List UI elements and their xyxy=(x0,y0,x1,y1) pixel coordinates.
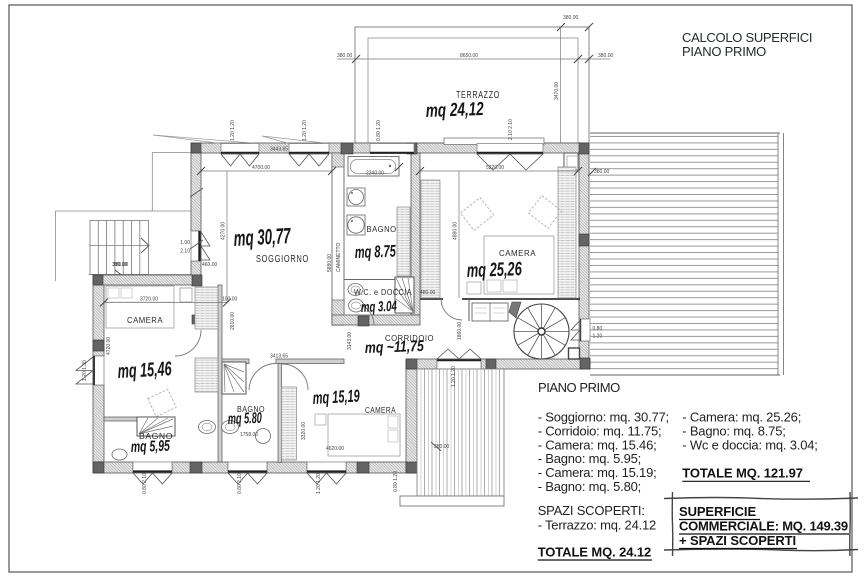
svg-text:2.10 2.10: 2.10 2.10 xyxy=(508,119,514,140)
svg-text:PIANO PRIMO: PIANO PRIMO xyxy=(682,44,766,59)
svg-text:2610.00: 2610.00 xyxy=(230,312,236,330)
svg-text:380.00: 380.00 xyxy=(337,53,353,59)
svg-text:1.20 1.20: 1.20 1.20 xyxy=(316,473,322,494)
svg-text:- Corridoio: mq. 11.75;: - Corridoio: mq. 11.75; xyxy=(538,423,662,438)
svg-text:1.20 1.20: 1.20 1.20 xyxy=(451,366,457,387)
svg-text:+ SPAZI SCOPERTI: + SPAZI SCOPERTI xyxy=(679,533,796,548)
svg-text:380.00: 380.00 xyxy=(434,444,450,450)
svg-text:0.80 2.10: 0.80 2.10 xyxy=(142,473,148,494)
svg-text:- Camera: mq. 25.26;: - Camera: mq. 25.26; xyxy=(682,410,801,425)
svg-text:mq ~11,75: mq ~11,75 xyxy=(365,338,425,357)
svg-text:1.20 1.30: 1.20 1.30 xyxy=(82,360,88,381)
svg-text:TOTALE MQ. 121.97: TOTALE MQ. 121.97 xyxy=(682,465,803,480)
svg-text:PIANO PRIMO: PIANO PRIMO xyxy=(538,380,620,395)
svg-text:mq 5.80: mq 5.80 xyxy=(228,410,263,428)
svg-text:- Bagno: mq. 5.80;: - Bagno: mq. 5.80; xyxy=(538,479,641,494)
svg-text:- Bagno: mq. 5.95;: - Bagno: mq. 5.95; xyxy=(538,451,641,466)
svg-text:0.80 2.10: 0.80 2.10 xyxy=(237,473,243,494)
svg-text:5220.00: 5220.00 xyxy=(486,165,504,171)
svg-text:3320.00: 3320.00 xyxy=(301,422,307,440)
svg-text:4700.00: 4700.00 xyxy=(252,165,270,171)
svg-text:CAMERA: CAMERA xyxy=(365,406,396,415)
svg-text:COMMERCIALE: MQ. 149.39: COMMERCIALE: MQ. 149.39 xyxy=(679,519,848,534)
svg-text:380.00: 380.00 xyxy=(113,262,129,268)
svg-text:CAMINETTO: CAMINETTO xyxy=(336,243,342,272)
svg-text:3413.65: 3413.65 xyxy=(270,354,288,360)
svg-text:SUPERFICIE: SUPERFICIE xyxy=(679,504,756,519)
svg-text:SPAZI SCOPERTI:: SPAZI SCOPERTI: xyxy=(538,503,645,518)
svg-text:2.10: 2.10 xyxy=(180,249,190,255)
svg-text:mq 15,46: mq 15,46 xyxy=(117,358,173,383)
svg-text:5880.00: 5880.00 xyxy=(327,254,333,272)
svg-text:CAMERA: CAMERA xyxy=(127,316,163,325)
svg-text:BAGNO: BAGNO xyxy=(367,225,397,234)
svg-text:4720.00: 4720.00 xyxy=(106,337,112,355)
svg-text:mq 15,19: mq 15,19 xyxy=(312,386,360,408)
svg-text:4880.00: 4880.00 xyxy=(453,222,459,240)
svg-text:0.80 1.20: 0.80 1.20 xyxy=(376,120,382,141)
svg-text:380.00: 380.00 xyxy=(598,53,614,59)
svg-text:W.C. e DOCCIA: W.C. e DOCCIA xyxy=(354,288,412,297)
svg-text:TOTALE MQ. 24.12: TOTALE MQ. 24.12 xyxy=(538,544,652,559)
svg-text:1.20 1.20: 1.20 1.20 xyxy=(230,120,236,141)
svg-text:- Soggiorno: mq. 30.77;: - Soggiorno: mq. 30.77; xyxy=(538,410,669,425)
svg-text:mq 5,95: mq 5,95 xyxy=(131,438,171,456)
svg-text:1758.00: 1758.00 xyxy=(240,432,258,438)
svg-text:0.80: 0.80 xyxy=(593,326,603,332)
svg-text:3470.00: 3470.00 xyxy=(554,82,560,100)
svg-text:- Camera: mq. 15.19;: - Camera: mq. 15.19; xyxy=(538,465,657,480)
svg-text:0.80 1.20: 0.80 1.20 xyxy=(393,471,399,492)
svg-text:4270.00: 4270.00 xyxy=(221,222,227,240)
svg-text:mq 30,77: mq 30,77 xyxy=(233,223,292,251)
svg-text:2340.00: 2340.00 xyxy=(366,171,384,177)
svg-text:460.00: 460.00 xyxy=(202,262,218,268)
svg-text:100.00: 100.00 xyxy=(222,297,238,303)
svg-text:mq 3.04: mq 3.04 xyxy=(361,299,398,316)
svg-text:1.00: 1.00 xyxy=(180,240,190,246)
svg-text:480.00: 480.00 xyxy=(420,290,436,296)
svg-text:380.00: 380.00 xyxy=(594,169,610,175)
svg-text:mq 24,12: mq 24,12 xyxy=(425,99,484,122)
svg-text:1860.00: 1860.00 xyxy=(457,322,463,340)
svg-text:1.20 1.20: 1.20 1.20 xyxy=(302,120,308,141)
svg-text:CAMERA: CAMERA xyxy=(499,249,536,258)
svg-text:- Wc e doccia: mq. 3.04;: - Wc e doccia: mq. 3.04; xyxy=(682,437,817,452)
svg-text:mq 25,26: mq 25,26 xyxy=(466,258,522,282)
svg-text:- Bagno: mq. 8.75;: - Bagno: mq. 8.75; xyxy=(682,423,785,438)
svg-text:1.20: 1.20 xyxy=(593,334,603,340)
svg-text:SOGGIORNO: SOGGIORNO xyxy=(256,254,309,265)
svg-text:3720.00: 3720.00 xyxy=(140,297,158,303)
svg-text:380.00: 380.00 xyxy=(563,15,579,21)
svg-text:- Camera: mq. 15.46;: - Camera: mq. 15.46; xyxy=(538,437,657,452)
svg-text:CALCOLO SUPERFICI: CALCOLO SUPERFICI xyxy=(682,30,813,45)
svg-text:4620.00: 4620.00 xyxy=(326,446,344,452)
svg-text:mq 8.75: mq 8.75 xyxy=(354,242,396,262)
svg-text:- Terrazzo: mq. 24.12: - Terrazzo: mq. 24.12 xyxy=(538,517,656,532)
svg-text:3443.65: 3443.65 xyxy=(270,147,288,153)
svg-text:3143.00: 3143.00 xyxy=(347,332,353,350)
svg-text:8650.00: 8650.00 xyxy=(460,53,478,59)
